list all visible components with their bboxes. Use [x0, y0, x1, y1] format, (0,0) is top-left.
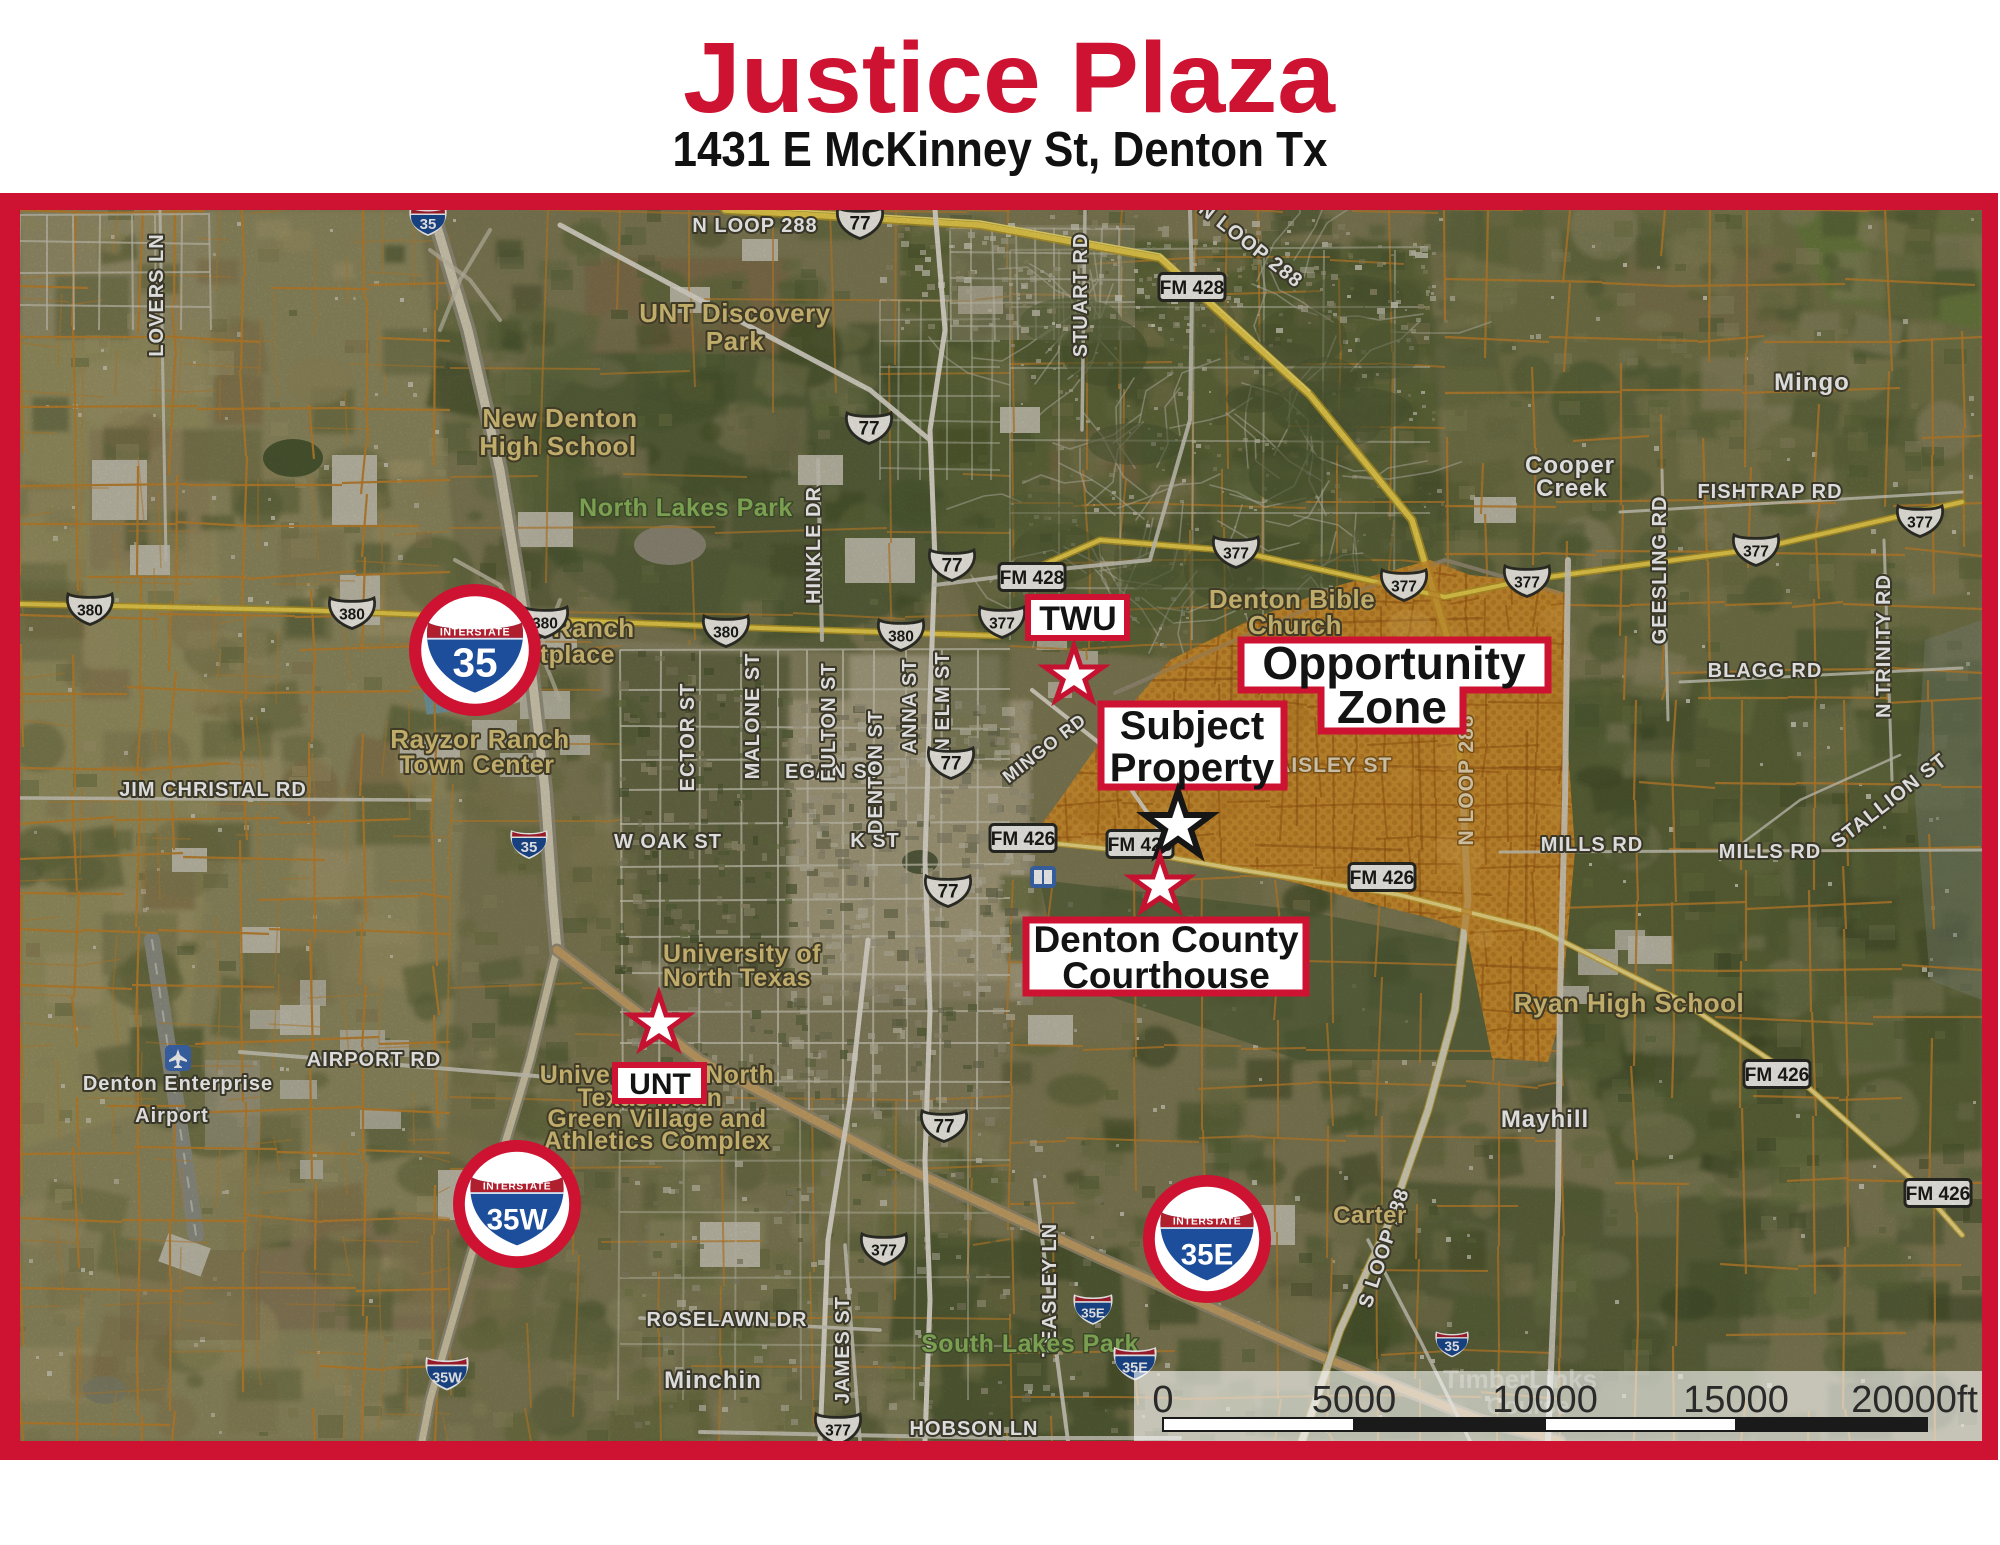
svg-text:1431 E McKinney St, Denton Tx: 1431 E McKinney St, Denton Tx [673, 123, 1328, 177]
svg-text:Justice Plaza: Justice Plaza [683, 22, 1336, 134]
